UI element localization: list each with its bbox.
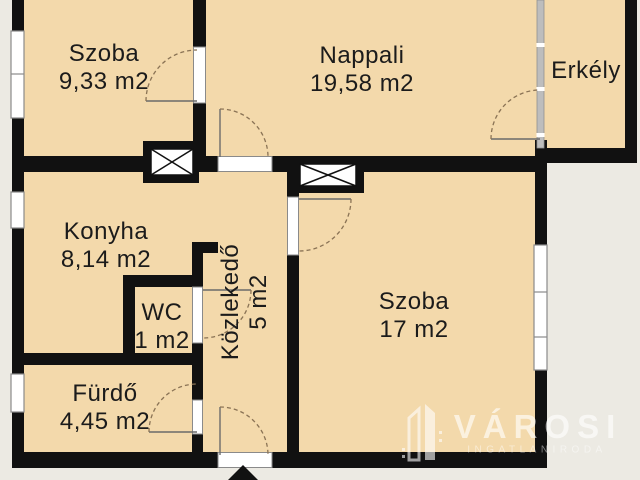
room-area: 17 m2: [379, 316, 450, 344]
room-name: Fürdő: [60, 380, 150, 408]
vent-shaft-b: [292, 157, 364, 193]
door-jamb-szoba1: [194, 47, 206, 103]
wall-wc-top: [123, 275, 203, 287]
wall-stub-konyha: [192, 242, 218, 253]
room-area: 9,33 m2: [59, 68, 149, 96]
room-area: 1 m2: [134, 327, 189, 355]
room-area: 5 m2: [245, 227, 273, 377]
room-name: Konyha: [61, 218, 151, 246]
room-label-nappali: Nappali 19,58 m2: [310, 42, 414, 98]
window-furdo-left: [11, 374, 24, 412]
room-name: Szoba: [59, 40, 149, 68]
room-label-kozlekedo: Közlekedő 5 m2: [217, 227, 275, 377]
wall-wc-left: [123, 275, 135, 363]
balcony-glazing: [537, 0, 545, 148]
wall-bottom-exterior: [12, 452, 547, 468]
room-area: 19,58 m2: [310, 70, 414, 98]
room-label-wc: WC 1 m2: [134, 299, 189, 355]
vent-shaft-a: [143, 141, 199, 183]
room-label-furdo: Fürdő 4,45 m2: [60, 380, 150, 436]
room-name: Nappali: [310, 42, 414, 70]
door-jamb-entrance: [218, 453, 272, 468]
wall-erkely-right: [625, 0, 637, 163]
room-label-erkely: Erkély: [551, 57, 621, 85]
room-label-szoba2: Szoba 17 m2: [379, 288, 450, 344]
room-area: 4,45 m2: [60, 408, 150, 436]
door-jamb-wc: [193, 287, 203, 343]
window-konyha-left: [11, 192, 24, 228]
room-name: Erkély: [551, 57, 621, 85]
room-name: Közlekedő: [217, 227, 245, 377]
door-jamb-szoba2: [288, 197, 299, 255]
room-area: 8,14 m2: [61, 246, 151, 274]
room-name: Szoba: [379, 288, 450, 316]
door-jamb-furdo: [193, 400, 203, 434]
room-label-konyha: Konyha 8,14 m2: [61, 218, 151, 274]
window-szoba2-right: [534, 245, 547, 370]
room-label-szoba1: Szoba 9,33 m2: [59, 40, 149, 96]
floorplan: Szoba 9,33 m2 Nappali 19,58 m2 Erkély Ko…: [0, 0, 640, 480]
room-name: WC: [134, 299, 189, 327]
wall-mid-horizontal: [12, 156, 547, 172]
wall-erkely-bottom: [536, 148, 637, 163]
door-jamb-nappali: [218, 157, 272, 172]
